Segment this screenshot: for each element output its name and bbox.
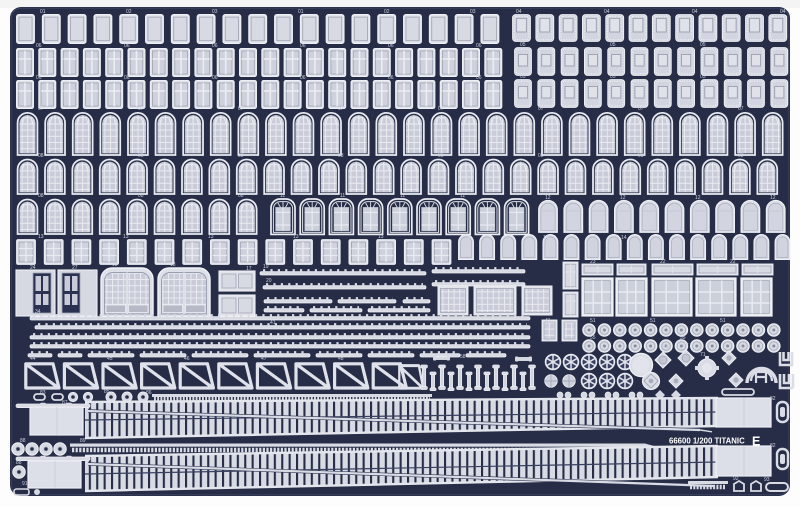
svg-text:55: 55	[590, 335, 596, 341]
svg-text:88: 88	[16, 460, 22, 466]
svg-text:05: 05	[520, 42, 526, 48]
svg-text:13: 13	[378, 234, 384, 240]
svg-text:03: 03	[470, 9, 476, 15]
svg-text:02: 02	[126, 9, 132, 15]
svg-text:27: 27	[72, 265, 78, 271]
svg-text:06: 06	[476, 43, 482, 49]
svg-text:55: 55	[680, 335, 686, 341]
svg-text:11: 11	[340, 193, 345, 199]
svg-text:07: 07	[638, 106, 644, 112]
svg-text:51: 51	[720, 318, 726, 324]
svg-text:08: 08	[538, 153, 544, 159]
svg-text:08: 08	[738, 153, 744, 159]
svg-text:93: 93	[764, 477, 770, 483]
svg-text:14: 14	[699, 235, 705, 241]
svg-text:13: 13	[38, 234, 44, 240]
svg-text:07: 07	[738, 106, 744, 112]
svg-text:89: 89	[80, 438, 86, 444]
svg-text:24: 24	[30, 265, 36, 271]
svg-text:07: 07	[338, 106, 344, 112]
svg-text:14: 14	[777, 235, 783, 241]
svg-text:47: 47	[261, 356, 267, 362]
svg-text:07: 07	[138, 106, 144, 112]
svg-text:11: 11	[280, 193, 285, 199]
svg-text:22: 22	[730, 259, 736, 265]
svg-text:13: 13	[123, 234, 129, 240]
svg-text:14: 14	[465, 235, 471, 241]
svg-text:07: 07	[438, 106, 444, 112]
svg-text:04: 04	[780, 9, 786, 15]
svg-text:08: 08	[438, 153, 444, 159]
svg-text:12: 12	[620, 195, 626, 201]
svg-text:11: 11	[400, 193, 405, 199]
svg-text:88: 88	[20, 438, 26, 444]
svg-text:06: 06	[36, 75, 42, 81]
svg-text:05: 05	[700, 42, 706, 48]
svg-text:18: 18	[170, 262, 176, 268]
svg-text:17: 17	[246, 266, 252, 272]
svg-text:08: 08	[638, 153, 644, 159]
svg-text:13: 13	[293, 234, 299, 240]
svg-text:85: 85	[104, 389, 110, 395]
svg-text:34: 34	[35, 309, 41, 315]
svg-text:20: 20	[266, 278, 272, 284]
svg-text:41: 41	[545, 318, 551, 324]
svg-text:06: 06	[124, 43, 130, 49]
svg-text:08: 08	[238, 193, 244, 199]
svg-text:06: 06	[212, 75, 218, 81]
svg-text:22: 22	[660, 259, 666, 265]
svg-text:46: 46	[184, 356, 190, 362]
svg-text:04: 04	[516, 9, 522, 15]
svg-text:07: 07	[238, 106, 244, 112]
svg-text:82: 82	[770, 396, 776, 402]
svg-text:18: 18	[112, 262, 118, 268]
svg-text:06: 06	[388, 43, 394, 49]
svg-text:08: 08	[38, 153, 44, 159]
svg-text:23: 23	[590, 259, 596, 265]
svg-text:51: 51	[590, 318, 596, 324]
svg-text:05: 05	[700, 74, 706, 80]
svg-text:06: 06	[124, 75, 130, 81]
svg-text:05: 05	[610, 74, 616, 80]
svg-text:01: 01	[298, 9, 304, 15]
svg-text:01: 01	[40, 9, 46, 15]
svg-text:71: 71	[700, 352, 706, 358]
svg-text:58: 58	[460, 354, 466, 360]
svg-text:82: 82	[770, 443, 776, 449]
svg-text:06: 06	[300, 43, 306, 49]
svg-text:07: 07	[538, 106, 544, 112]
svg-text:08: 08	[238, 153, 244, 159]
svg-text:14: 14	[543, 235, 549, 241]
svg-text:06: 06	[212, 43, 218, 49]
svg-text:51: 51	[650, 318, 656, 324]
svg-text:48: 48	[338, 356, 344, 362]
svg-text:13: 13	[208, 234, 214, 240]
svg-text:04: 04	[692, 9, 698, 15]
svg-text:91: 91	[22, 481, 28, 487]
svg-text:14: 14	[621, 235, 627, 241]
svg-text:44: 44	[30, 356, 36, 362]
svg-text:11: 11	[460, 193, 465, 199]
svg-text:42: 42	[545, 337, 551, 343]
svg-text:19: 19	[263, 264, 269, 270]
svg-text:03: 03	[212, 9, 218, 15]
svg-text:67: 67	[683, 343, 689, 349]
svg-text:06: 06	[388, 75, 394, 81]
svg-text:08: 08	[38, 193, 44, 199]
svg-text:12: 12	[695, 195, 701, 201]
svg-text:41: 41	[270, 320, 276, 326]
svg-text:83: 83	[40, 390, 46, 396]
svg-text:45: 45	[107, 356, 113, 362]
svg-text:75: 75	[755, 348, 761, 354]
svg-text:02: 02	[384, 9, 390, 15]
svg-text:05: 05	[610, 42, 616, 48]
svg-text:66600 1/200 TITANIC: 66600 1/200 TITANIC	[669, 437, 745, 446]
svg-text:05: 05	[520, 74, 526, 80]
svg-text:87: 87	[62, 400, 68, 406]
svg-text:06: 06	[476, 75, 482, 81]
svg-text:12: 12	[545, 195, 551, 201]
svg-text:12: 12	[770, 195, 776, 201]
svg-text:66: 66	[663, 345, 669, 351]
svg-text:86: 86	[146, 390, 152, 396]
svg-text:08: 08	[138, 153, 144, 159]
svg-text:08: 08	[138, 193, 144, 199]
svg-text:08: 08	[338, 153, 344, 159]
svg-text:06: 06	[36, 43, 42, 49]
svg-text:06: 06	[300, 75, 306, 81]
svg-text:92: 92	[733, 476, 739, 482]
svg-text:04: 04	[604, 9, 610, 15]
svg-text:07: 07	[38, 106, 44, 112]
